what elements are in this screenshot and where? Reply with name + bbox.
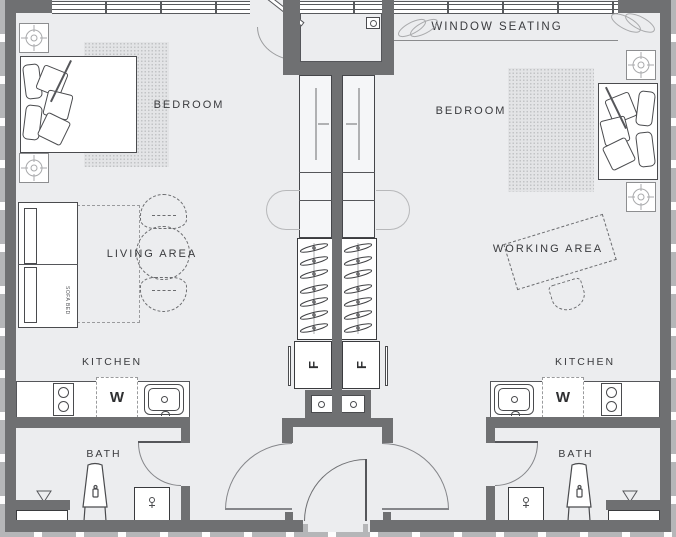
- plant-icon: [396, 14, 442, 42]
- entrance-door-leaf: [365, 459, 367, 521]
- unit-door-leaf-right: [382, 508, 449, 510]
- closet-handle-line: [358, 88, 360, 160]
- vent-circle: [370, 20, 377, 27]
- door-jamb-stub: [285, 512, 293, 520]
- wall-right: [660, 0, 671, 532]
- hangers-icon: [342, 239, 375, 338]
- wall-bottom-left: [5, 520, 303, 532]
- wardrobe-hangers-left: [297, 238, 333, 340]
- wall-bath-jamb-left-top: [181, 428, 190, 443]
- nightstand: [19, 153, 49, 183]
- sofa-cushion: [24, 267, 37, 323]
- ceiling-lamp-icon: [20, 24, 48, 52]
- window-top-left: [52, 1, 250, 14]
- shower-ledge-left: [16, 500, 70, 510]
- wall-left: [5, 0, 16, 532]
- sofa-bed-extension-dashed: [77, 205, 140, 323]
- wall-core-stem: [332, 62, 342, 418]
- washbasin-left: [80, 462, 110, 524]
- shower-ledge-right: [606, 500, 660, 510]
- threshold-mark: [303, 524, 308, 532]
- wall-bath-jamb-right-bottom: [486, 486, 495, 520]
- nightstand: [626, 50, 656, 80]
- closet-divider: [299, 200, 332, 201]
- door-jamb-stub: [383, 512, 391, 520]
- closet-divider: [342, 172, 375, 173]
- nightstand: [626, 182, 656, 212]
- wall-kitchen-bath-left: [16, 417, 190, 428]
- chair-seat-line: [152, 215, 176, 216]
- meter-dial: [350, 401, 357, 408]
- outer-edge-right: [671, 0, 676, 537]
- toilet-left: [134, 487, 170, 523]
- washer-left: W: [96, 377, 138, 418]
- burner: [606, 387, 617, 398]
- label-sofa-bed: SOFA BED: [64, 286, 70, 315]
- label-bedroom-left: BEDROOM: [154, 99, 225, 111]
- cabinet-side-panel: [385, 346, 388, 386]
- chair-seat-line: [152, 290, 176, 291]
- washer-right: W: [542, 377, 584, 418]
- wall-bottom-right: [370, 520, 671, 532]
- stove-left: [53, 383, 74, 416]
- vestibule-lintel-inner: [293, 427, 382, 443]
- bath-door-leaf-right: [495, 441, 538, 443]
- label-kitchen-right: KITCHEN: [555, 356, 615, 368]
- closet-handle-tick: [346, 123, 357, 125]
- fridge-right: F: [342, 341, 380, 389]
- sink-right: [494, 384, 534, 415]
- unit-door-leaf-left: [225, 508, 292, 510]
- label-bath-left: BATH: [86, 448, 121, 460]
- burner: [58, 401, 69, 412]
- floor-plan: BEDROOM BEDROOM WINDOW SEATING SOFA BED …: [0, 0, 676, 537]
- closet-divider: [342, 200, 375, 201]
- wall-kitchen-bath-right: [486, 417, 660, 428]
- threshold-mark: [363, 524, 368, 532]
- wall-bath-jamb-left-bottom: [181, 486, 190, 520]
- ceiling-lamp-icon: [20, 154, 48, 182]
- ceiling-lamp-icon: [627, 51, 655, 79]
- sink-tap: [511, 411, 520, 416]
- nightstand: [19, 23, 49, 53]
- sink-tap: [161, 411, 170, 416]
- wall-bath-jamb-right-top: [486, 428, 495, 443]
- toilet-icon: [145, 496, 159, 512]
- rug-right-bedroom: [508, 68, 594, 192]
- label-washer-left: W: [97, 378, 137, 417]
- label-washer-right: W: [543, 378, 583, 417]
- toilet-icon: [519, 496, 533, 512]
- wall-top-left-corner: [5, 0, 52, 13]
- window-top-right: [394, 1, 618, 14]
- label-fridge-right: F: [338, 347, 384, 383]
- label-working-area: WORKING AREA: [493, 243, 603, 255]
- label-living-area: LIVING AREA: [107, 248, 197, 260]
- outer-edge-bottom: [0, 532, 676, 537]
- sink-left: [144, 384, 184, 415]
- label-bedroom-right: BEDROOM: [436, 105, 507, 117]
- closet-handle-line: [315, 88, 317, 160]
- bath-door-leaf-left: [138, 441, 181, 443]
- label-window-seating: WINDOW SEATING: [431, 21, 562, 33]
- label-bath-right: BATH: [558, 448, 593, 460]
- stove-right: [601, 383, 622, 416]
- hangers-icon: [298, 239, 331, 338]
- meter-dial: [318, 401, 325, 408]
- burner: [606, 401, 617, 412]
- burner: [58, 387, 69, 398]
- sink-drain: [161, 396, 168, 403]
- hamper-arc-left: [266, 190, 300, 230]
- toilet-right: [508, 487, 544, 523]
- closet-divider: [299, 172, 332, 173]
- washbasin-right: [564, 462, 594, 524]
- plant-icon: [608, 8, 660, 38]
- ceiling-lamp-icon: [627, 183, 655, 211]
- fridge-left: F: [294, 341, 332, 389]
- sofa-divider-line: [18, 264, 78, 265]
- closet-handle-tick: [318, 123, 329, 125]
- vent-icon: [366, 17, 380, 29]
- window-core-room: [300, 1, 382, 14]
- wardrobe-hangers-right: [341, 238, 377, 340]
- sofa-cushion: [24, 208, 37, 264]
- sink-drain: [511, 396, 518, 403]
- label-fridge-left: F: [290, 347, 336, 383]
- label-kitchen-left: KITCHEN: [82, 356, 142, 368]
